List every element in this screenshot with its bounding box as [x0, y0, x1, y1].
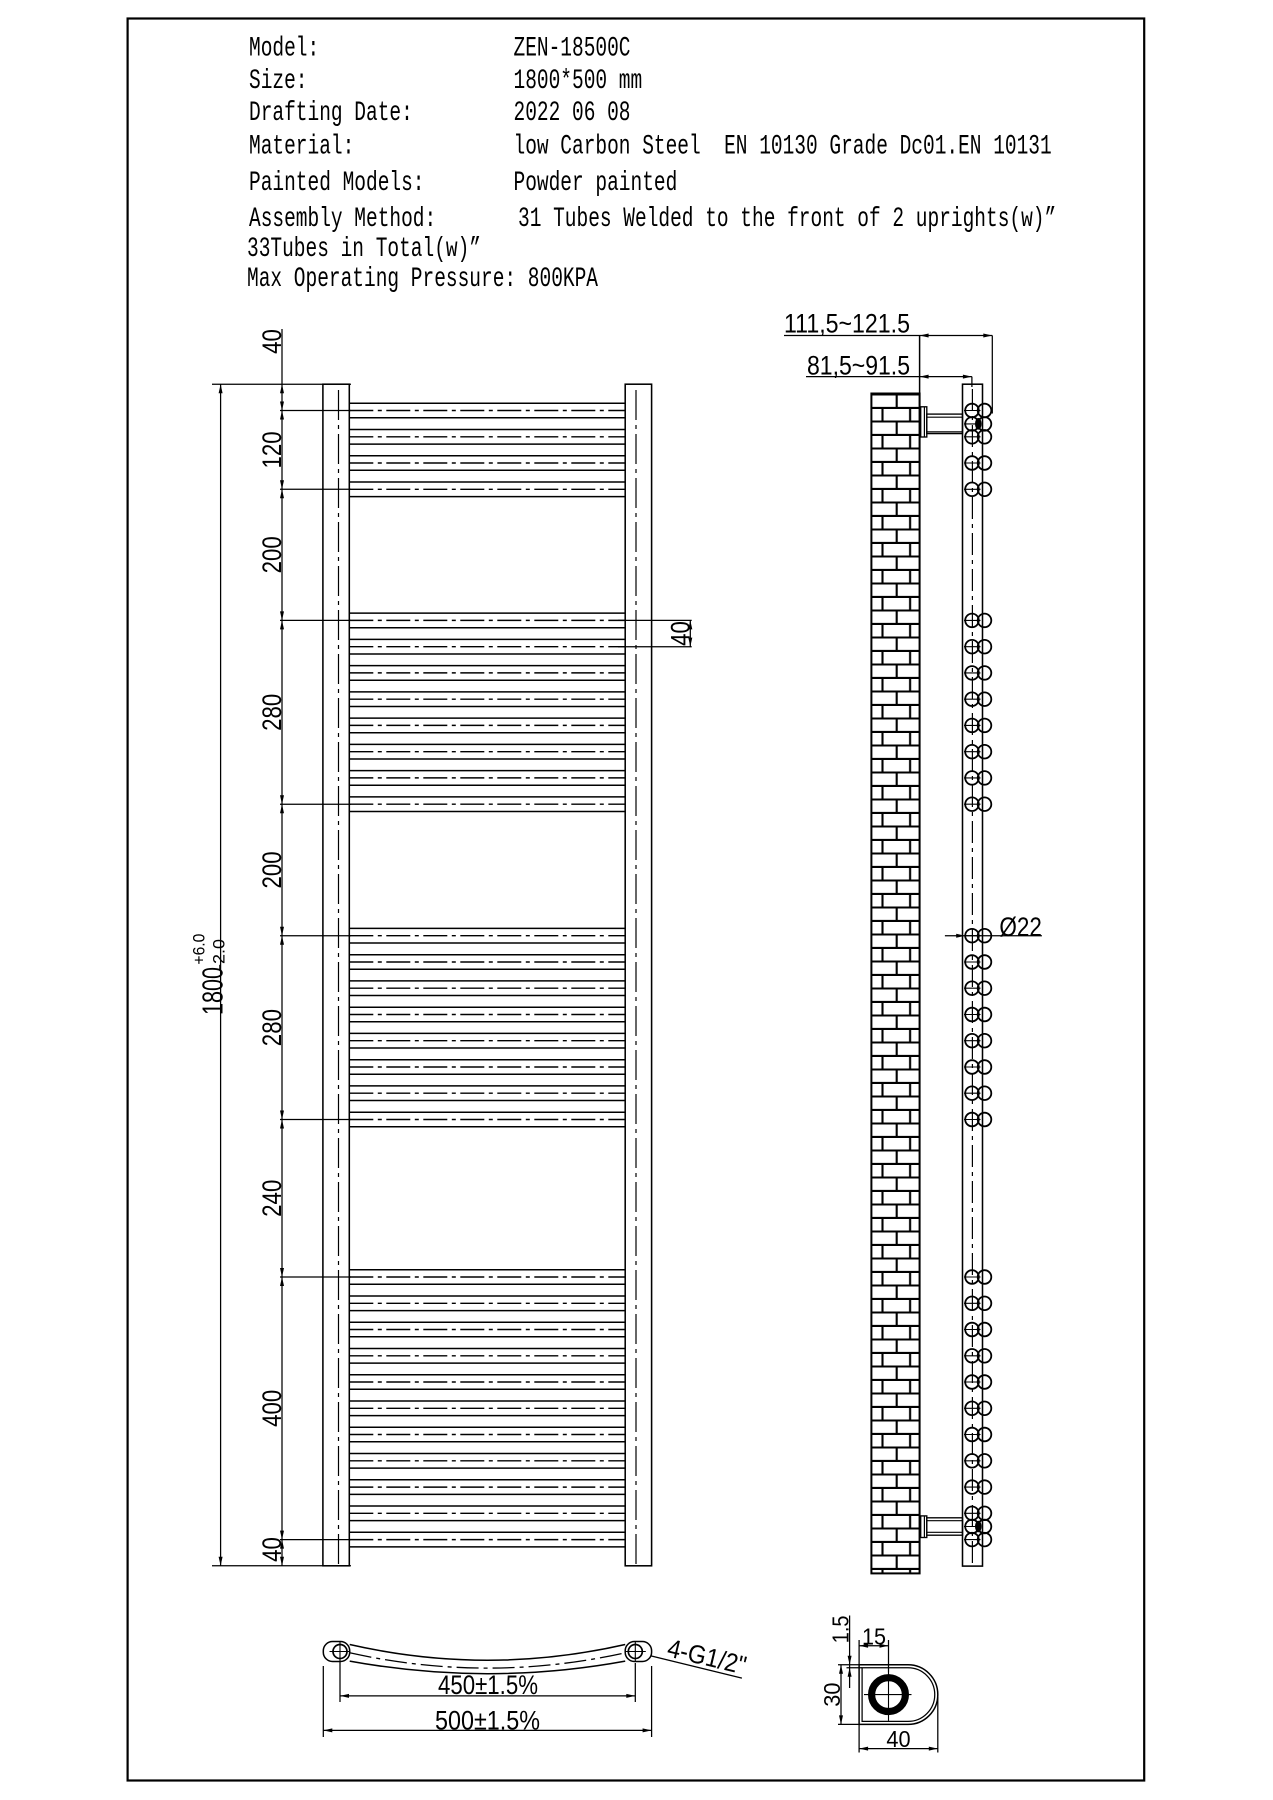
svg-text:Assembly Method:: Assembly Method:: [249, 204, 436, 235]
svg-text:-2.0: -2.0: [210, 939, 229, 970]
svg-text:ZEN-18500C: ZEN-18500C: [514, 34, 631, 65]
svg-text:280: 280: [257, 694, 287, 731]
svg-text:31 Tubes Welded to the front o: 31 Tubes Welded to the front of 2 uprigh…: [518, 204, 1056, 235]
svg-text:low Carbon Steel EN 10130 Gra: low Carbon Steel EN 10130 Grade Dc01.EN …: [514, 132, 1052, 163]
svg-text:33Tubes in Total(w)”: 33Tubes in Total(w)”: [247, 234, 481, 265]
svg-text:280: 280: [257, 1009, 287, 1046]
svg-text:81,5~91.5: 81,5~91.5: [807, 350, 910, 380]
svg-text:Material:: Material:: [249, 132, 354, 163]
svg-text:200: 200: [257, 851, 287, 888]
svg-text:240: 240: [257, 1180, 287, 1217]
svg-text:+6.0: +6.0: [190, 934, 209, 965]
svg-text:2022 06 08: 2022 06 08: [514, 98, 631, 129]
svg-text:120: 120: [257, 431, 287, 468]
svg-text:Ø22: Ø22: [999, 912, 1042, 942]
svg-text:1.5: 1.5: [827, 1616, 853, 1644]
svg-text:40: 40: [886, 1726, 910, 1752]
svg-text:111,5~121.5: 111,5~121.5: [784, 308, 910, 338]
svg-text:450±1.5%: 450±1.5%: [438, 1670, 538, 1700]
svg-text:Max Operating Pressure: 800KPA: Max Operating Pressure: 800KPA: [247, 264, 598, 295]
svg-text:15: 15: [862, 1624, 886, 1650]
svg-text:1800: 1800: [198, 967, 230, 1015]
svg-text:40: 40: [257, 329, 287, 354]
svg-text:Painted Models:: Painted Models:: [249, 168, 425, 199]
svg-text:40: 40: [257, 1537, 287, 1562]
svg-text:200: 200: [257, 536, 287, 573]
svg-text:Drafting Date:: Drafting Date:: [249, 98, 413, 129]
svg-text:Powder painted: Powder painted: [514, 168, 678, 199]
svg-text:Model:: Model:: [249, 34, 319, 65]
svg-text:1800*500 mm: 1800*500 mm: [514, 66, 643, 97]
svg-text:Size:: Size:: [249, 66, 308, 97]
svg-text:500±1.5%: 500±1.5%: [435, 1705, 540, 1735]
svg-text:40: 40: [665, 621, 695, 646]
svg-text:400: 400: [257, 1390, 287, 1427]
svg-text:30: 30: [819, 1683, 845, 1707]
